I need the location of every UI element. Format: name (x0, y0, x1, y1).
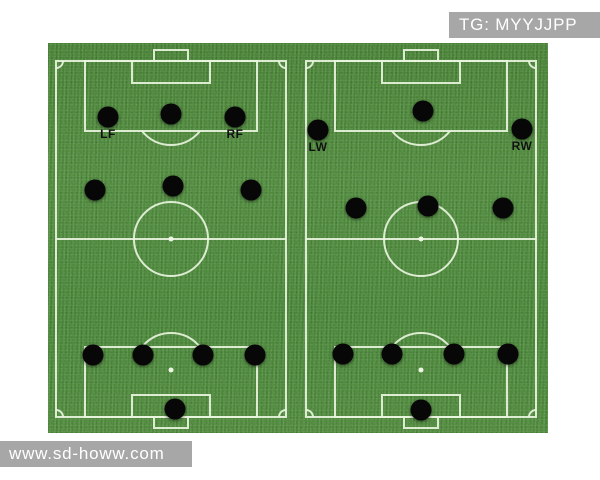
player-dot-right-lm (346, 198, 367, 219)
player-dot-left-gk (165, 399, 186, 420)
player-dot-right-cm (418, 196, 439, 217)
player-dot-left-cm (163, 176, 184, 197)
player-dot-right-lw (308, 120, 329, 141)
soccer-field-image: LFRFLWRW (48, 43, 548, 433)
watermark-bottom-left: www.sd-howw.com (0, 441, 192, 467)
player-label-left-lf: LF (100, 128, 116, 140)
player-dot-left-lb (83, 345, 104, 366)
formation-diagram: LFRFLWRW TG: MYYJJPP www.sd-howw.com (0, 0, 600, 480)
player-dot-right-cf (413, 101, 434, 122)
player-dot-left-lm (85, 180, 106, 201)
player-dot-right-rb (498, 344, 519, 365)
player-dot-left-lf (98, 107, 119, 128)
player-label-right-lw: LW (309, 141, 328, 153)
player-dot-right-rm (493, 198, 514, 219)
player-label-right-rw: RW (512, 140, 533, 152)
player-dot-left-rm (241, 180, 262, 201)
player-label-left-rf: RF (227, 128, 244, 140)
player-dot-right-lb (333, 344, 354, 365)
player-dot-left-rcb (193, 345, 214, 366)
watermark-top-right: TG: MYYJJPP (449, 12, 600, 38)
players-layer: LFRFLWRW (48, 43, 548, 433)
player-dot-right-rcb (444, 344, 465, 365)
watermark-top-right-text: TG: MYYJJPP (459, 15, 577, 35)
player-dot-left-lcb (133, 345, 154, 366)
player-dot-right-lcb (382, 344, 403, 365)
player-dot-left-cf (161, 104, 182, 125)
player-dot-left-rf (225, 107, 246, 128)
watermark-bottom-left-text: www.sd-howw.com (9, 444, 165, 464)
player-dot-right-rw (512, 119, 533, 140)
player-dot-right-gk (411, 400, 432, 421)
player-dot-left-rb (245, 345, 266, 366)
